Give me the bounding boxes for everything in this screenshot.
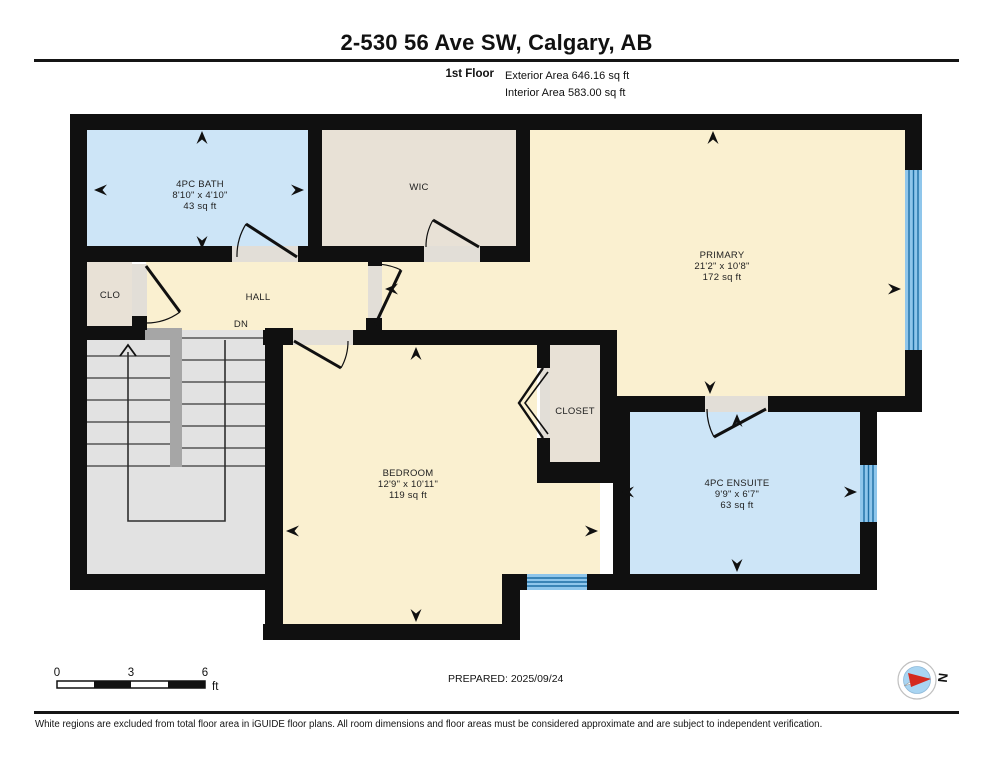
bath-dims: 8'10" x 4'10" [172, 190, 227, 201]
wic-door-sill [424, 246, 480, 262]
clo-name: CLO [100, 290, 120, 301]
floor-plan-canvas: 4PC BATH 8'10" x 4'10" 43 sq ft WIC PRIM… [0, 0, 993, 768]
stairs-dn-label: DN [234, 319, 248, 330]
ensuite-dims: 9'9" x 6'7" [715, 489, 759, 500]
closet-name: CLOSET [555, 406, 595, 417]
bedroom-dims: 12'9" x 10'11" [378, 479, 438, 490]
ensuite-window [860, 465, 877, 522]
footer-divider [34, 711, 959, 714]
scale-start: 0 [54, 667, 60, 679]
bath-door-sill [232, 246, 298, 262]
prepared-date: PREPARED: 2025/09/24 [448, 673, 563, 685]
bath-name: 4PC BATH [176, 179, 224, 190]
bedroom-area: 119 sq ft [389, 490, 427, 501]
scale-bar-seg1 [94, 681, 131, 688]
bedroom-window [527, 574, 587, 590]
bedroom-door-sill [293, 330, 353, 345]
primary-window [905, 170, 922, 350]
primary-dims: 21'2" x 10'8" [694, 261, 749, 272]
ensuite-door-sill [705, 396, 768, 412]
scale-bar: 0 3 6 ft [50, 663, 240, 699]
scale-bar-seg2 [168, 681, 205, 688]
scale-end: 6 [202, 667, 208, 679]
closet-floor [550, 345, 600, 462]
ensuite-name: 4PC ENSUITE [704, 478, 769, 489]
floorplan-page: 2-530 56 Ave SW, Calgary, AB 1st Floor E… [0, 0, 993, 768]
compass: N [880, 650, 965, 710]
hall-name: HALL [246, 292, 271, 303]
wic-name: WIC [409, 182, 428, 193]
primary-door-sill [368, 266, 382, 318]
primary-area: 172 sq ft [703, 272, 742, 283]
bath-area: 43 sq ft [183, 201, 216, 212]
primary-name: PRIMARY [700, 250, 745, 261]
bedroom-name: BEDROOM [383, 468, 434, 479]
stair-divider [170, 332, 182, 467]
clo-door-sill [132, 264, 147, 318]
scale-unit: ft [212, 681, 219, 693]
scale-mid: 3 [128, 667, 134, 679]
ensuite-area: 63 sq ft [720, 500, 753, 511]
compass-north-label: N [935, 672, 951, 683]
disclaimer-text: White regions are excluded from total fl… [35, 719, 973, 730]
